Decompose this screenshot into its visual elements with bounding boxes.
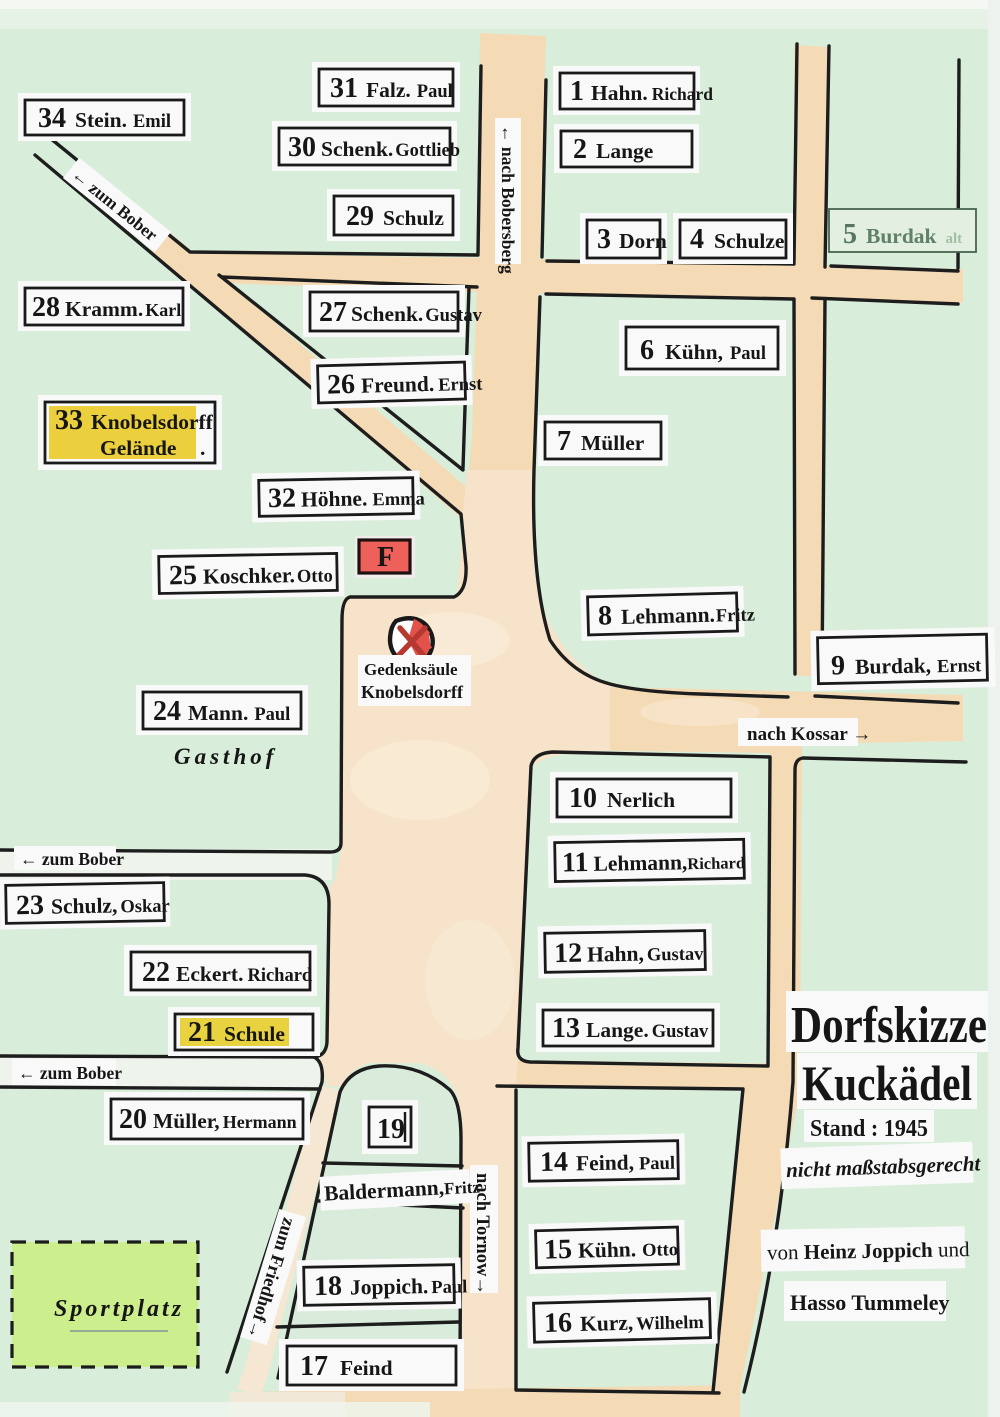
svg-text:Knobelsdorff: Knobelsdorff xyxy=(361,682,464,702)
svg-text:Gedenksäule: Gedenksäule xyxy=(364,660,458,679)
svg-text:F: F xyxy=(377,542,394,573)
svg-text:Gelände: Gelände xyxy=(100,436,176,460)
svg-text:2Lange: 2Lange xyxy=(573,134,653,165)
svg-text:Gasthof: Gasthof xyxy=(174,744,277,769)
svg-text:von Heinz Joppich und: von Heinz Joppich und xyxy=(767,1237,970,1265)
svg-text:Hasso Tummeley: Hasso Tummeley xyxy=(790,1290,950,1315)
svg-text:← zum Bober: ← zum Bober xyxy=(20,849,124,869)
svg-text:Dorfskizze: Dorfskizze xyxy=(791,997,987,1054)
svg-text:Sportplatz: Sportplatz xyxy=(54,1296,184,1322)
svg-text:29Schulz: 29Schulz xyxy=(346,201,444,232)
svg-text:7Müller: 7Müller xyxy=(557,426,645,457)
svg-text:19: 19 xyxy=(377,1114,405,1145)
svg-text:Stand : 1945: Stand : 1945 xyxy=(810,1116,928,1142)
svg-text:17Feind: 17Feind xyxy=(300,1351,393,1382)
svg-text:nach Kossar →: nach Kossar → xyxy=(747,724,871,745)
svg-text:Kuckädel: Kuckädel xyxy=(802,1055,972,1111)
svg-text:10Nerlich: 10Nerlich xyxy=(569,783,675,814)
svg-text:21Schule: 21Schule xyxy=(188,1017,285,1048)
svg-text:3Dorn: 3Dorn xyxy=(597,224,667,255)
svg-text:← nach Bobersberg: ← nach Bobersberg xyxy=(498,125,518,274)
svg-text:.: . xyxy=(200,436,205,460)
svg-text:33Knobelsdorff: 33Knobelsdorff xyxy=(55,405,214,436)
svg-text:← zum Bober: ← zum Bober xyxy=(18,1063,122,1083)
